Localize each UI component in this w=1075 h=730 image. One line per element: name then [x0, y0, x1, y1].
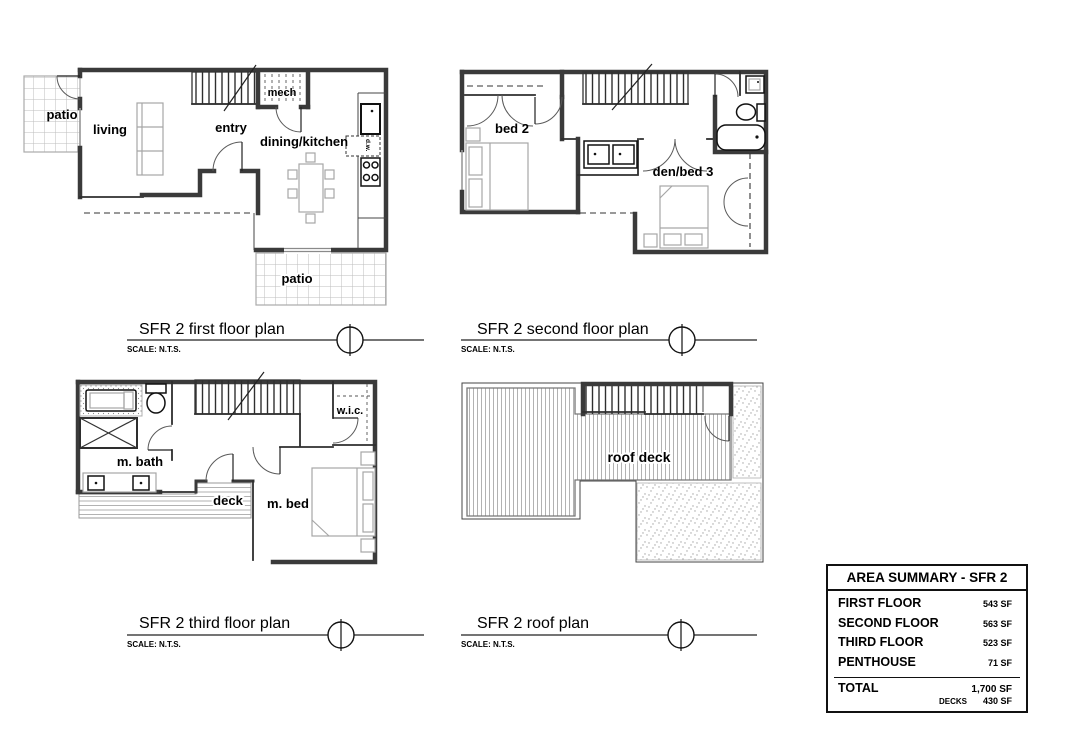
decks-label: DECKS — [939, 697, 967, 706]
first-floor-title: SFR 2 first floor plan — [139, 321, 285, 338]
first-floor-scale-note: SCALE: N.T.S. — [127, 345, 181, 354]
third-floor-scale-note: SCALE: N.T.S. — [127, 640, 181, 649]
vanity-double-sink — [83, 473, 156, 492]
table-row: THIRD FLOOR 523 SF — [838, 635, 1012, 655]
stairs — [192, 65, 257, 111]
den-bed — [644, 186, 708, 248]
shower — [80, 418, 137, 448]
second-floor-title: SFR 2 second floor plan — [477, 321, 649, 338]
table-row: PENTHOUSE 71 SF — [838, 655, 1012, 675]
bed2-door — [535, 97, 562, 124]
row-label: PENTHOUSE — [838, 655, 916, 669]
total-row: TOTAL 1,700 SF — [828, 678, 1026, 695]
vanity-double-sink — [584, 141, 637, 168]
row-value: 71 SF — [988, 658, 1012, 668]
stairs — [195, 372, 300, 420]
stove — [361, 158, 380, 186]
decks-row: DECKS 430 SF — [828, 695, 1026, 706]
third-floor-title: SFR 2 third floor plan — [139, 615, 290, 632]
roof-scale-note: SCALE: N.T.S. — [461, 640, 515, 649]
architectural-sheet: d.w. patio — [0, 0, 1075, 730]
row-value: 543 SF — [983, 599, 1012, 609]
third-floor-plan: m. bath deck m. bed w.i.c. SFR 2 third f… — [78, 372, 424, 651]
bathtub — [717, 125, 765, 150]
label-den-bed3: den/bed 3 — [653, 164, 714, 179]
second-floor-plan: bed 2 den/bed 3 SFR 2 second floor plan … — [461, 64, 766, 356]
dishwasher: d.w. — [346, 136, 380, 156]
dishwasher-label: d.w. — [364, 139, 371, 152]
first-floor-plan: d.w. patio — [24, 65, 424, 356]
row-label: SECOND FLOOR — [838, 616, 939, 630]
area-summary-title: AREA SUMMARY - SFR 2 — [828, 566, 1026, 591]
patio-bottom — [256, 253, 386, 305]
north-arrow-icon — [668, 619, 694, 651]
label-entry: entry — [215, 120, 248, 135]
row-value: 563 SF — [983, 619, 1012, 629]
row-label: THIRD FLOOR — [838, 635, 923, 649]
second-floor-titleblock: SFR 2 second floor plan SCALE: N.T.S. — [461, 321, 757, 356]
table-row: SECOND FLOOR 563 SF — [838, 616, 1012, 636]
toilet — [146, 384, 166, 413]
third-floor-titleblock: SFR 2 third floor plan SCALE: N.T.S. — [127, 615, 424, 651]
toilet — [737, 104, 766, 121]
label-m-bath: m. bath — [117, 454, 163, 469]
north-arrow-icon — [669, 324, 695, 356]
label-bed2: bed 2 — [495, 121, 529, 136]
north-arrow-icon — [328, 619, 354, 651]
label-deck: deck — [213, 493, 243, 508]
label-dining-kitchen: dining/kitchen — [260, 134, 348, 149]
mech-room — [258, 71, 308, 132]
deck-door — [206, 454, 233, 481]
row-value: 523 SF — [983, 638, 1012, 648]
roof-texture-right — [733, 386, 761, 478]
sofa — [137, 103, 163, 175]
den-closet — [724, 153, 750, 247]
label-wic: w.i.c. — [336, 405, 364, 417]
bed2-bed — [466, 128, 528, 210]
roof-plan: roof deck SFR 2 roof plan SCALE: N.T.S. — [461, 383, 763, 651]
patio-slider-door — [284, 246, 331, 254]
row-label: FIRST FLOOR — [838, 596, 921, 610]
table-row: FIRST FLOOR 543 SF — [838, 596, 1012, 616]
label-mech: mech — [268, 87, 297, 99]
first-floor-titleblock: SFR 2 first floor plan SCALE: N.T.S. — [127, 321, 424, 356]
mbed-door — [253, 447, 280, 474]
dining-table — [288, 153, 334, 223]
area-summary-table: AREA SUMMARY - SFR 2 FIRST FLOOR 543 SF … — [826, 564, 1028, 713]
total-value: 1,700 SF — [971, 684, 1012, 695]
roof-title: SFR 2 roof plan — [477, 615, 589, 632]
north-arrow-icon — [337, 324, 363, 356]
roof-texture-bottom — [637, 483, 761, 560]
bath-door — [715, 74, 738, 97]
master-bed — [312, 452, 375, 552]
bath-door — [148, 426, 172, 450]
second-floor-scale-note: SCALE: N.T.S. — [461, 345, 515, 354]
label-living: living — [93, 122, 127, 137]
decks-value: 430 SF — [983, 696, 1012, 706]
label-patio-left: patio — [46, 107, 77, 122]
area-summary-rows: FIRST FLOOR 543 SF SECOND FLOOR 563 SF T… — [828, 591, 1026, 674]
bath-sink — [746, 76, 764, 93]
kitchen-sink — [361, 104, 380, 134]
tub — [80, 385, 142, 416]
label-m-bed: m. bed — [267, 496, 309, 511]
total-label: TOTAL — [838, 681, 879, 695]
wic-door — [333, 418, 358, 443]
roof-titleblock: SFR 2 roof plan SCALE: N.T.S. — [461, 615, 757, 651]
label-roof-deck: roof deck — [607, 449, 670, 465]
label-patio-bottom: patio — [281, 271, 312, 286]
